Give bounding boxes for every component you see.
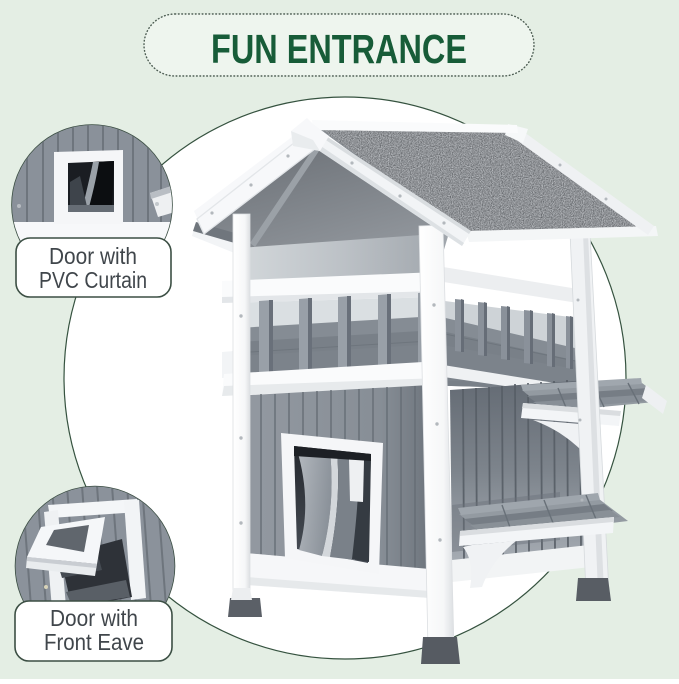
svg-text:PVC Curtain: PVC Curtain [39,267,147,293]
svg-text:Door with: Door with [49,243,137,269]
svg-text:Front Eave: Front Eave [44,629,144,655]
svg-text:Door with: Door with [50,605,138,631]
svg-text:FUN ENTRANCE: FUN ENTRANCE [211,26,467,72]
